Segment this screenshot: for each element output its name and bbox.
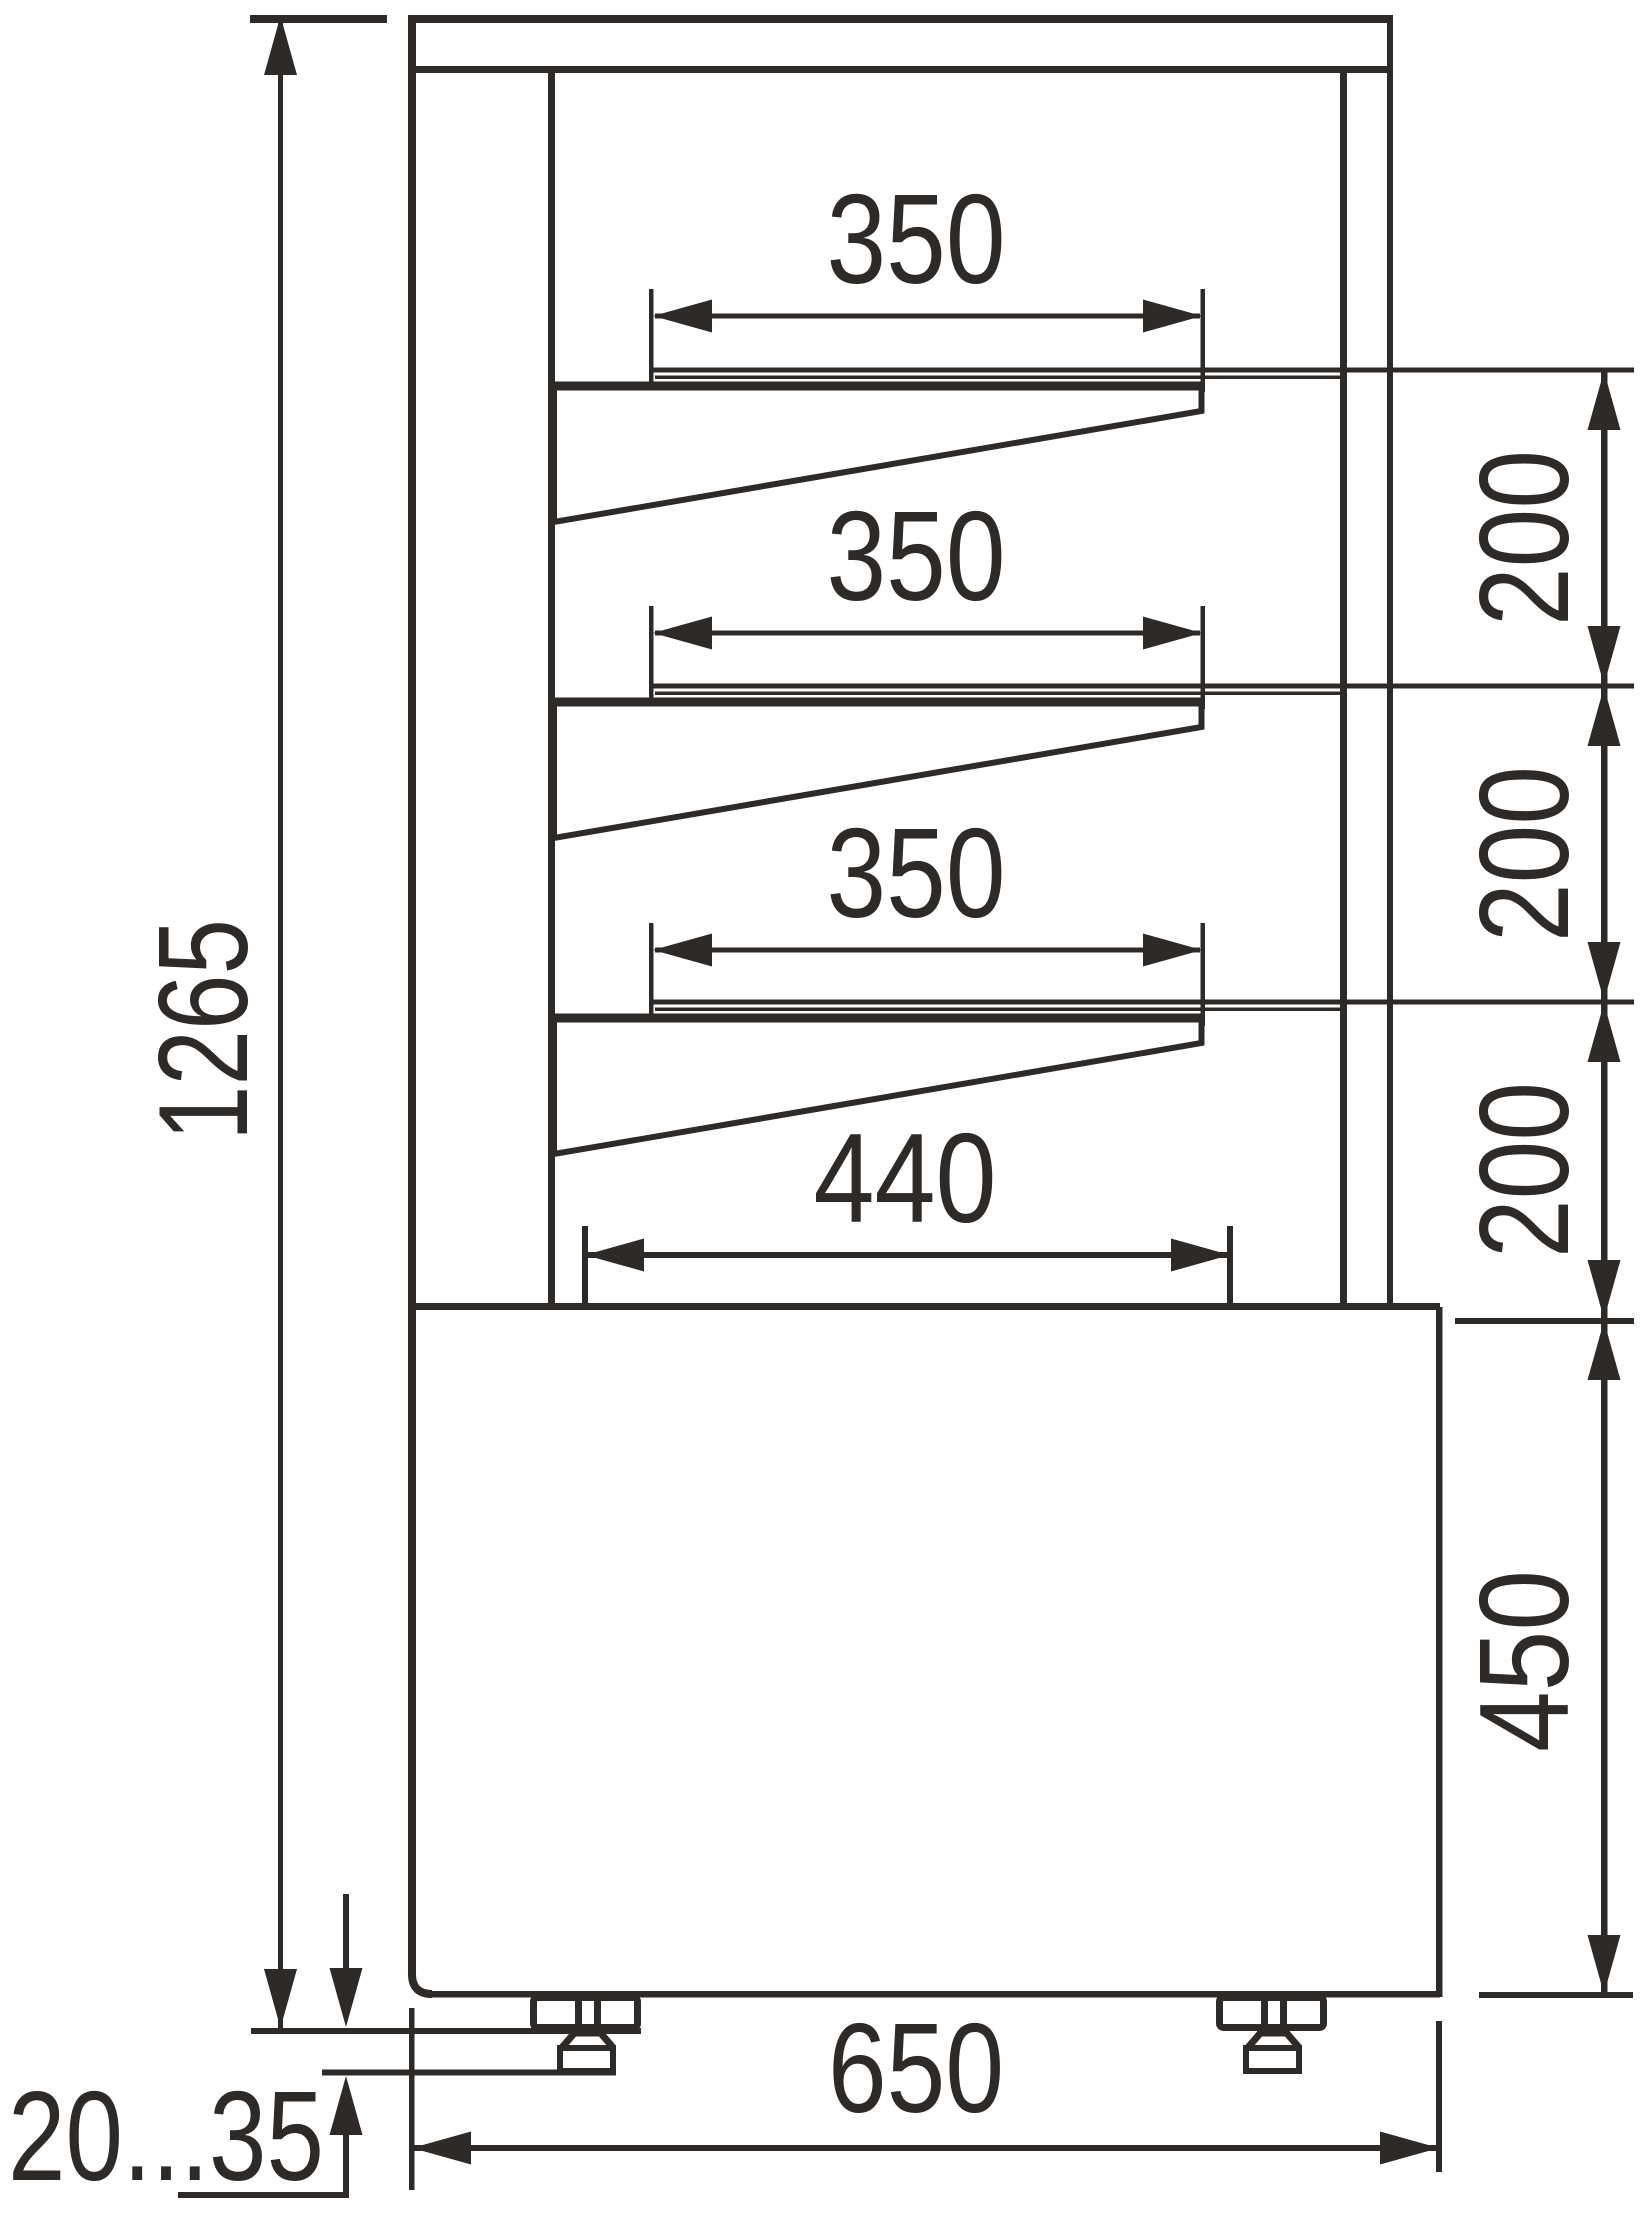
svg-text:650: 650	[828, 1997, 1004, 2139]
svg-text:440: 440	[814, 1107, 997, 1249]
svg-text:1265: 1265	[132, 919, 274, 1141]
svg-text:350: 350	[827, 485, 1006, 627]
svg-text:350: 350	[827, 168, 1006, 310]
svg-text:200: 200	[1453, 1082, 1595, 1258]
svg-text:200: 200	[1453, 450, 1595, 626]
svg-text:20...35: 20...35	[8, 2065, 324, 2207]
svg-text:200: 200	[1453, 766, 1595, 942]
svg-text:350: 350	[827, 802, 1006, 944]
svg-text:450: 450	[1453, 1570, 1595, 1752]
